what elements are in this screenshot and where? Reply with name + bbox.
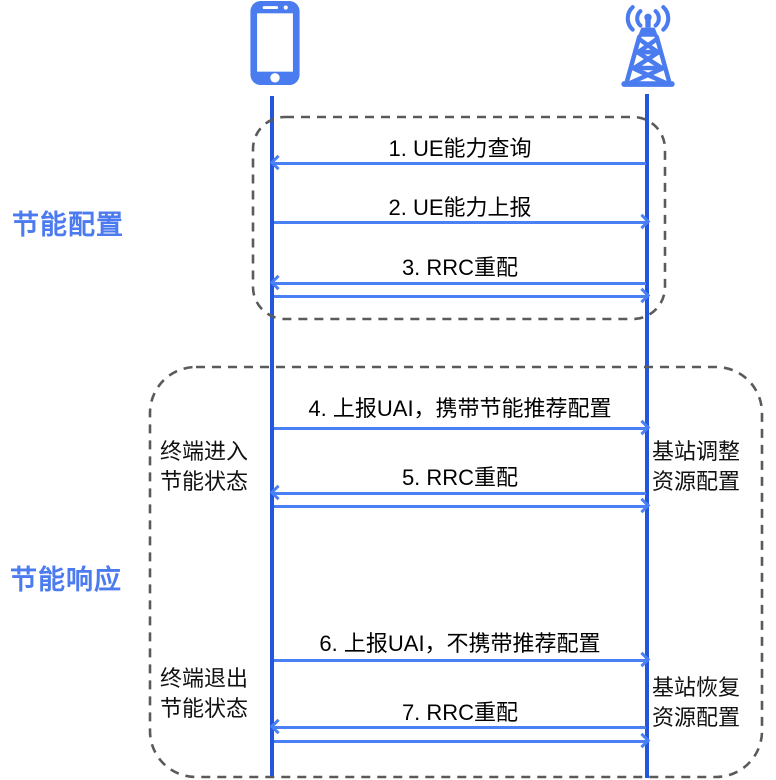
message-2-label: 2. UE能力上报	[274, 190, 646, 222]
note-bs-adjust-resources: 基站调整 资源配置	[652, 437, 740, 497]
message-3-label: 3. RRC重配	[274, 250, 646, 282]
message-3-arrow-to-bs	[274, 295, 646, 298]
note-ue-enter-powersave: 终端进入 节能状态	[160, 437, 248, 497]
sequence-diagram: 节能配置 节能响应 1. UE能力查询 2. UE能力上报 3. RRC重配 4…	[0, 0, 776, 780]
note-ue-exit-powersave: 终端退出 节能状态	[160, 664, 248, 724]
message-1-label: 1. UE能力查询	[274, 131, 646, 163]
message-6-label: 6. 上报UAI，不携带推荐配置	[274, 626, 646, 658]
message-1-arrow-to-ue	[274, 162, 646, 165]
message-5-arrow-to-bs	[274, 505, 646, 508]
message-7-arrow-to-ue	[274, 726, 646, 729]
message-7-label: 7. RRC重配	[274, 695, 646, 727]
message-2-arrow-to-bs	[274, 221, 646, 224]
note-bs-restore-resources: 基站恢复 资源配置	[652, 673, 740, 733]
message-4-arrow-to-bs	[274, 427, 646, 430]
group-label-config: 节能配置	[12, 203, 124, 242]
message-7-arrow-to-bs	[274, 740, 646, 743]
group-label-response: 节能响应	[10, 558, 122, 597]
message-3-arrow-to-ue	[274, 282, 646, 285]
message-4-label: 4. 上报UAI，携带节能推荐配置	[274, 391, 646, 423]
message-5-label: 5. RRC重配	[274, 460, 646, 492]
message-6-arrow-to-bs	[274, 659, 646, 662]
message-5-arrow-to-ue	[274, 492, 646, 495]
base-station-icon	[614, 1, 682, 96]
smartphone-icon	[249, 0, 301, 91]
